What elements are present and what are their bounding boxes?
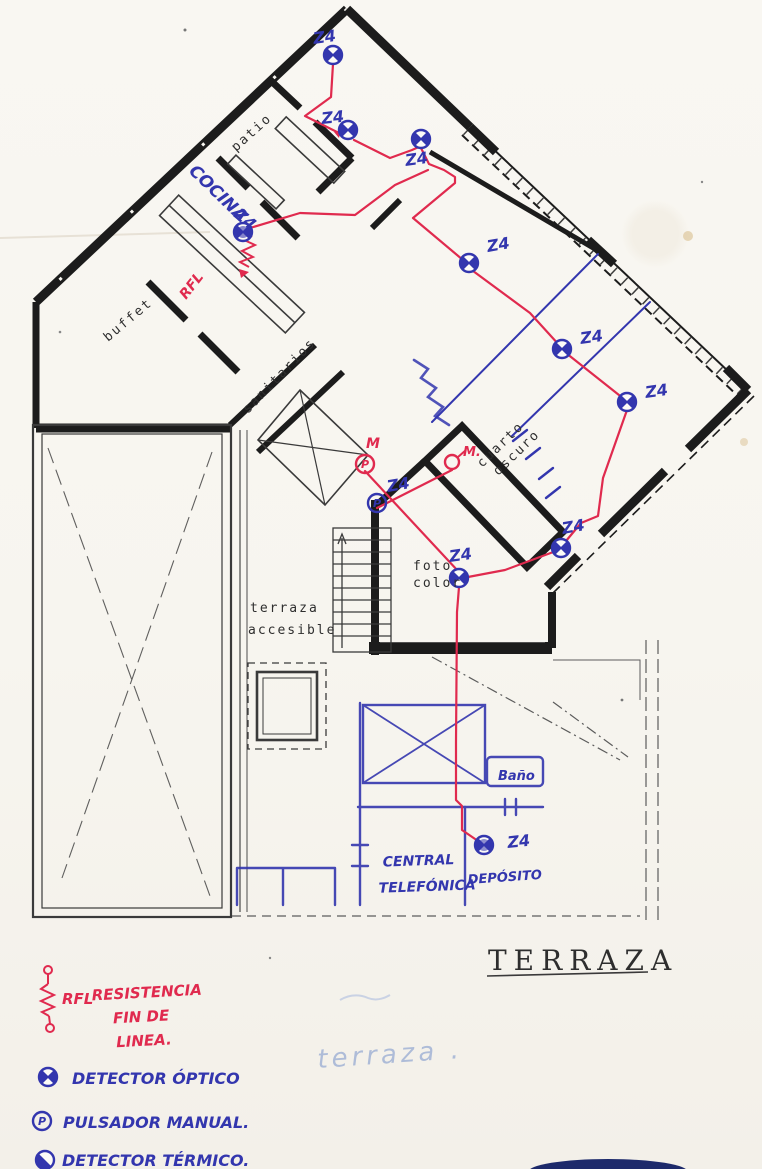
zone-label: Z4 <box>403 148 429 170</box>
manual-point-red-2: M. <box>445 445 481 469</box>
svg-text:TELEFÓNICA: TELEFÓNICA <box>378 875 476 896</box>
svg-text:FIN DE: FIN DE <box>113 1006 171 1027</box>
room-label-cocina: COCINA <box>185 161 251 226</box>
smoke-detector-top-room: Z4 <box>311 26 342 64</box>
legend-thermal-label: DETECTOR TÉRMICO. <box>62 1151 249 1169</box>
room-label-buffet: buffet <box>101 296 156 345</box>
smoke-detector-deposito: Z4 <box>475 831 531 854</box>
room-label-central-telefonica: CENTRAL TELEFÓNICA <box>377 851 476 896</box>
legend-thermal-detector-icon <box>36 1151 54 1169</box>
zone-label: Z4 <box>484 233 511 256</box>
device-label-m: M <box>366 436 380 452</box>
room-labels: patio COCINA buffet sanitarios cuarto os… <box>101 111 678 1075</box>
zone-label: Z4 <box>505 831 531 852</box>
room-label-terraza-accesible: terraza accesible <box>248 601 336 638</box>
legend-optical-detector-icon <box>39 1068 57 1086</box>
svg-text:P: P <box>38 1115 46 1128</box>
legend: RFL RESISTENCIA FIN DE LINEA. DETECTOR Ó… <box>33 966 249 1169</box>
blue-zigzag <box>414 360 449 425</box>
manual-pushbutton-blue: P Z4 <box>368 473 411 512</box>
scan-edge-blot <box>528 1159 688 1169</box>
smoke-detector-living-1: Z4 <box>460 233 511 272</box>
smoke-detector-upper-hall: Z4 <box>403 130 430 170</box>
faded-scribble <box>340 995 390 1000</box>
sheet-title-terraza: TERRAZA <box>488 944 678 977</box>
svg-text:terraza: terraza <box>250 601 319 616</box>
legend-rfl-text: RESISTENCIA FIN DE LINEA. <box>91 981 205 1053</box>
svg-text:CENTRAL: CENTRAL <box>382 852 454 870</box>
zone-label: Z4 <box>643 380 669 402</box>
floor-plan-svg: Z4 Z4 Z4 Z4 Z4 Z4 Z4 Z4 Z4 Z4 P Z4 P M <box>0 0 762 1169</box>
svg-text:RESISTENCIA: RESISTENCIA <box>91 981 202 1005</box>
zone-label: Z4 <box>319 107 345 128</box>
legend-optical-label: DETECTOR ÓPTICO <box>72 1069 240 1088</box>
wall-upper-right-edge <box>347 9 470 127</box>
blue-circuit <box>414 254 650 498</box>
sheet-title-faded: terraza . <box>316 1035 463 1075</box>
scanned-floor-plan-sheet: Z4 Z4 Z4 Z4 Z4 Z4 Z4 Z4 Z4 Z4 P Z4 P M <box>0 0 762 1169</box>
legend-rfl-symbol <box>41 966 54 1032</box>
legend-rfl-abbr: RFL <box>62 990 93 1008</box>
window-hatch <box>466 131 744 394</box>
zone-label: Z4 <box>311 26 337 48</box>
zone-label: Z4 <box>578 326 604 348</box>
svg-text:LINEA.: LINEA. <box>116 1030 172 1051</box>
legend-pushbutton-icon: P <box>33 1112 51 1130</box>
staircase <box>333 528 391 652</box>
manual-pushbutton-red: P M <box>356 436 380 473</box>
smoke-detector-living-3: Z4 <box>618 380 669 411</box>
walls <box>36 9 754 655</box>
rfl-resistor-cocina <box>239 236 255 278</box>
room-label-bano: Baño <box>498 769 535 784</box>
svg-text:foto: foto <box>413 559 452 574</box>
room-label-deposito: DEPÓSITO <box>467 867 542 888</box>
svg-text:color: color <box>413 576 462 591</box>
wall-upper-left-edge <box>36 9 347 302</box>
svg-text:accesible: accesible <box>248 623 336 638</box>
pushbutton-letter: P <box>361 458 369 471</box>
wall-lower-right-edge <box>547 390 748 587</box>
pushbutton-letter: P <box>373 497 381 510</box>
rfl-label-cocina: RFL <box>177 270 208 303</box>
zone-label: Z4 <box>559 515 586 538</box>
zone-label: Z4 <box>384 473 411 496</box>
legend-pushbutton-label: PULSADOR MANUAL. <box>63 1113 249 1132</box>
